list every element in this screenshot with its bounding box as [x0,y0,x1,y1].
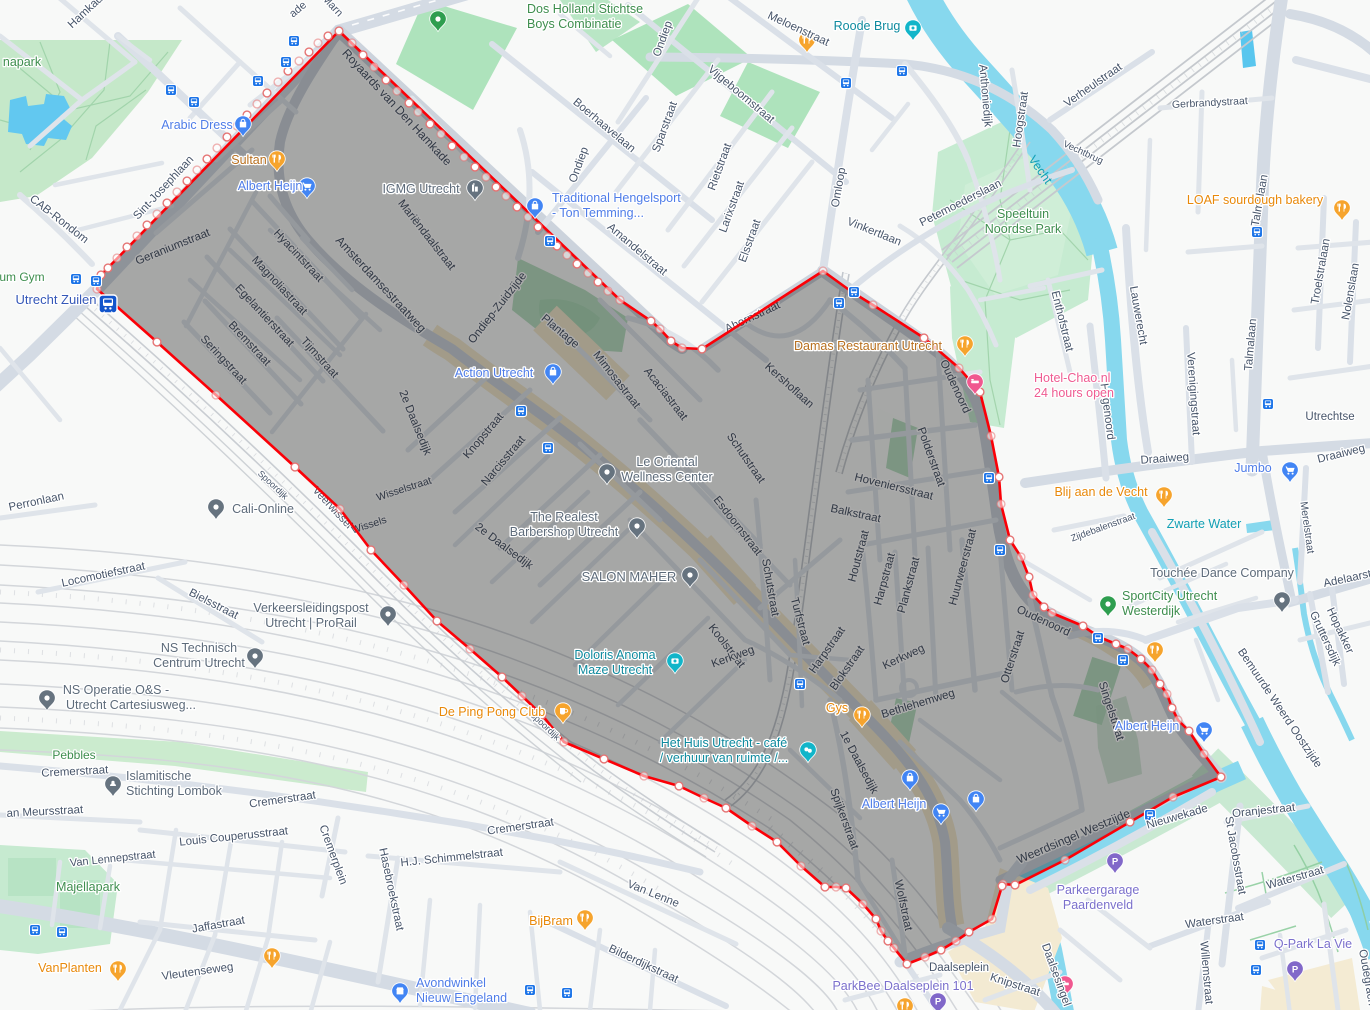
svg-text:SALON MAHER: SALON MAHER [582,569,677,584]
svg-text:Cali-Online: Cali-Online [232,502,294,516]
svg-text:- Ton Temming...: - Ton Temming... [552,206,644,220]
svg-text:Blij aan de Vecht: Blij aan de Vecht [1054,485,1148,499]
svg-text:Utrechtse: Utrechtse [1305,411,1354,423]
svg-text:Parkeergarage: Parkeergarage [1057,883,1140,897]
svg-text:Dos Holland Stichtse: Dos Holland Stichtse [527,2,643,16]
svg-text:Doloris Anoma: Doloris Anoma [574,648,655,662]
svg-text:/ verhuur van ruimte /...: / verhuur van ruimte /... [660,751,789,765]
svg-text:P: P [1112,856,1119,867]
svg-text:Utrecht Cartesiusweg...: Utrecht Cartesiusweg... [66,698,196,712]
svg-text:VanPlanten: VanPlanten [38,961,102,975]
svg-text:Arabic Dress: Arabic Dress [161,118,233,132]
svg-text:Sultan: Sultan [231,153,266,167]
svg-text:Daalseplein: Daalseplein [929,962,989,974]
svg-text:Albert Heijn: Albert Heijn [238,179,303,193]
svg-text:Barbershop Utrecht: Barbershop Utrecht [510,525,619,539]
svg-text:Utrecht | ProRail: Utrecht | ProRail [265,616,356,630]
svg-text:Le Oriental: Le Oriental [636,455,697,469]
svg-text:Speeltuin: Speeltuin [997,207,1049,221]
svg-text:Damas Restaurant Utrecht: Damas Restaurant Utrecht [794,339,943,353]
svg-text:Islamitische: Islamitische [126,769,191,783]
svg-text:napark: napark [3,55,42,69]
svg-text:De Ping Pong Club: De Ping Pong Club [439,705,545,719]
svg-text:NS Operatie O&S -: NS Operatie O&S - [63,683,169,697]
svg-text:Paardenveld: Paardenveld [1063,898,1133,912]
svg-text:Westerdijk: Westerdijk [1122,604,1181,618]
svg-text:Zwarte Water: Zwarte Water [1167,517,1242,531]
svg-text:um Gym: um Gym [0,270,45,284]
svg-text:Majellapark: Majellapark [56,880,121,894]
svg-text:P: P [1292,964,1299,975]
svg-text:ParkBee Daalseplein 101: ParkBee Daalseplein 101 [832,979,973,993]
svg-text:Roode Brug: Roode Brug [834,19,901,33]
svg-text:Hotel-Chao.nl: Hotel-Chao.nl [1034,371,1110,385]
svg-text:Verkeersleidingspost: Verkeersleidingspost [253,601,369,615]
svg-text:Nieuw Engeland: Nieuw Engeland [416,991,507,1005]
svg-text:Maze Utrecht: Maze Utrecht [578,663,653,677]
svg-text:Wellness Center: Wellness Center [621,470,712,484]
svg-text:Action Utrecht: Action Utrecht [455,366,534,380]
svg-text:Boys Combinatie: Boys Combinatie [527,17,622,31]
svg-text:Q-Park La Vie: Q-Park La Vie [1274,937,1352,951]
svg-text:Traditional Hengelsport: Traditional Hengelsport [552,191,681,205]
svg-text:Noordse Park: Noordse Park [985,222,1062,236]
svg-text:IGMG Utrecht: IGMG Utrecht [382,182,460,196]
svg-text:BijBram: BijBram [529,914,573,928]
svg-text:Jumbo: Jumbo [1234,461,1272,475]
svg-text:Het Huis Utrecht - café: Het Huis Utrecht - café [661,736,787,750]
svg-text:Gys: Gys [826,701,848,715]
svg-text:Touchée Dance Company: Touchée Dance Company [1150,566,1295,580]
svg-text:Avondwinkel: Avondwinkel [416,976,486,990]
svg-text:Albert Heijn: Albert Heijn [1115,719,1180,733]
svg-text:Centrum Utrecht: Centrum Utrecht [153,656,245,670]
svg-text:P: P [935,996,942,1007]
svg-text:24 hours open: 24 hours open [1034,386,1114,400]
svg-text:SportCity Utrecht: SportCity Utrecht [1122,589,1218,603]
svg-text:The Realest: The Realest [530,510,598,524]
svg-text:Albert Heijn: Albert Heijn [862,797,927,811]
svg-text:Utrecht Zuilen: Utrecht Zuilen [16,292,97,307]
svg-text:Stichting Lombok: Stichting Lombok [126,784,223,798]
svg-text:NS Technisch: NS Technisch [161,641,237,655]
svg-text:LOAF sourdough bakery: LOAF sourdough bakery [1187,193,1324,207]
svg-text:Pebbles: Pebbles [52,748,95,762]
